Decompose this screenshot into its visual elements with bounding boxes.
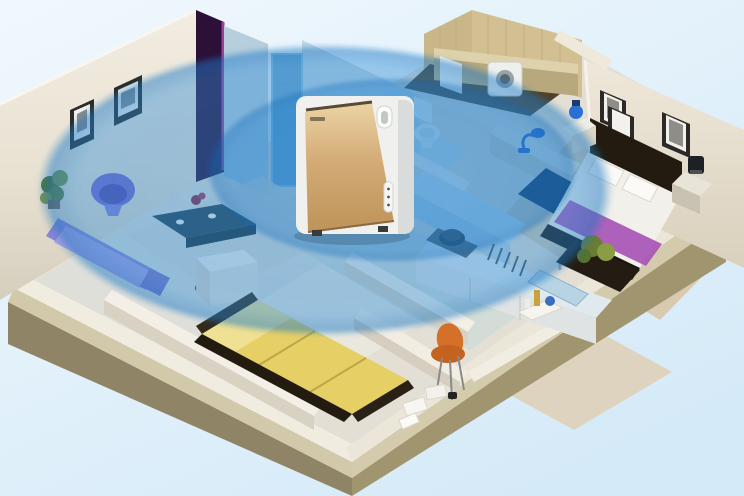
apartment-scene	[0, 0, 744, 496]
purifier-handle	[377, 106, 392, 128]
purifier-side-shade	[398, 100, 414, 234]
purifier-brand-logo	[310, 117, 325, 121]
amber-bottle	[534, 290, 540, 306]
purifier-control-strip	[384, 182, 393, 212]
air-purifier	[294, 96, 414, 245]
purifier-foot	[378, 226, 388, 232]
floorplan-illustration	[0, 0, 744, 496]
camera	[448, 392, 457, 399]
candle	[525, 299, 530, 308]
purifier-foot	[312, 230, 322, 236]
blue-sphere	[545, 296, 555, 306]
